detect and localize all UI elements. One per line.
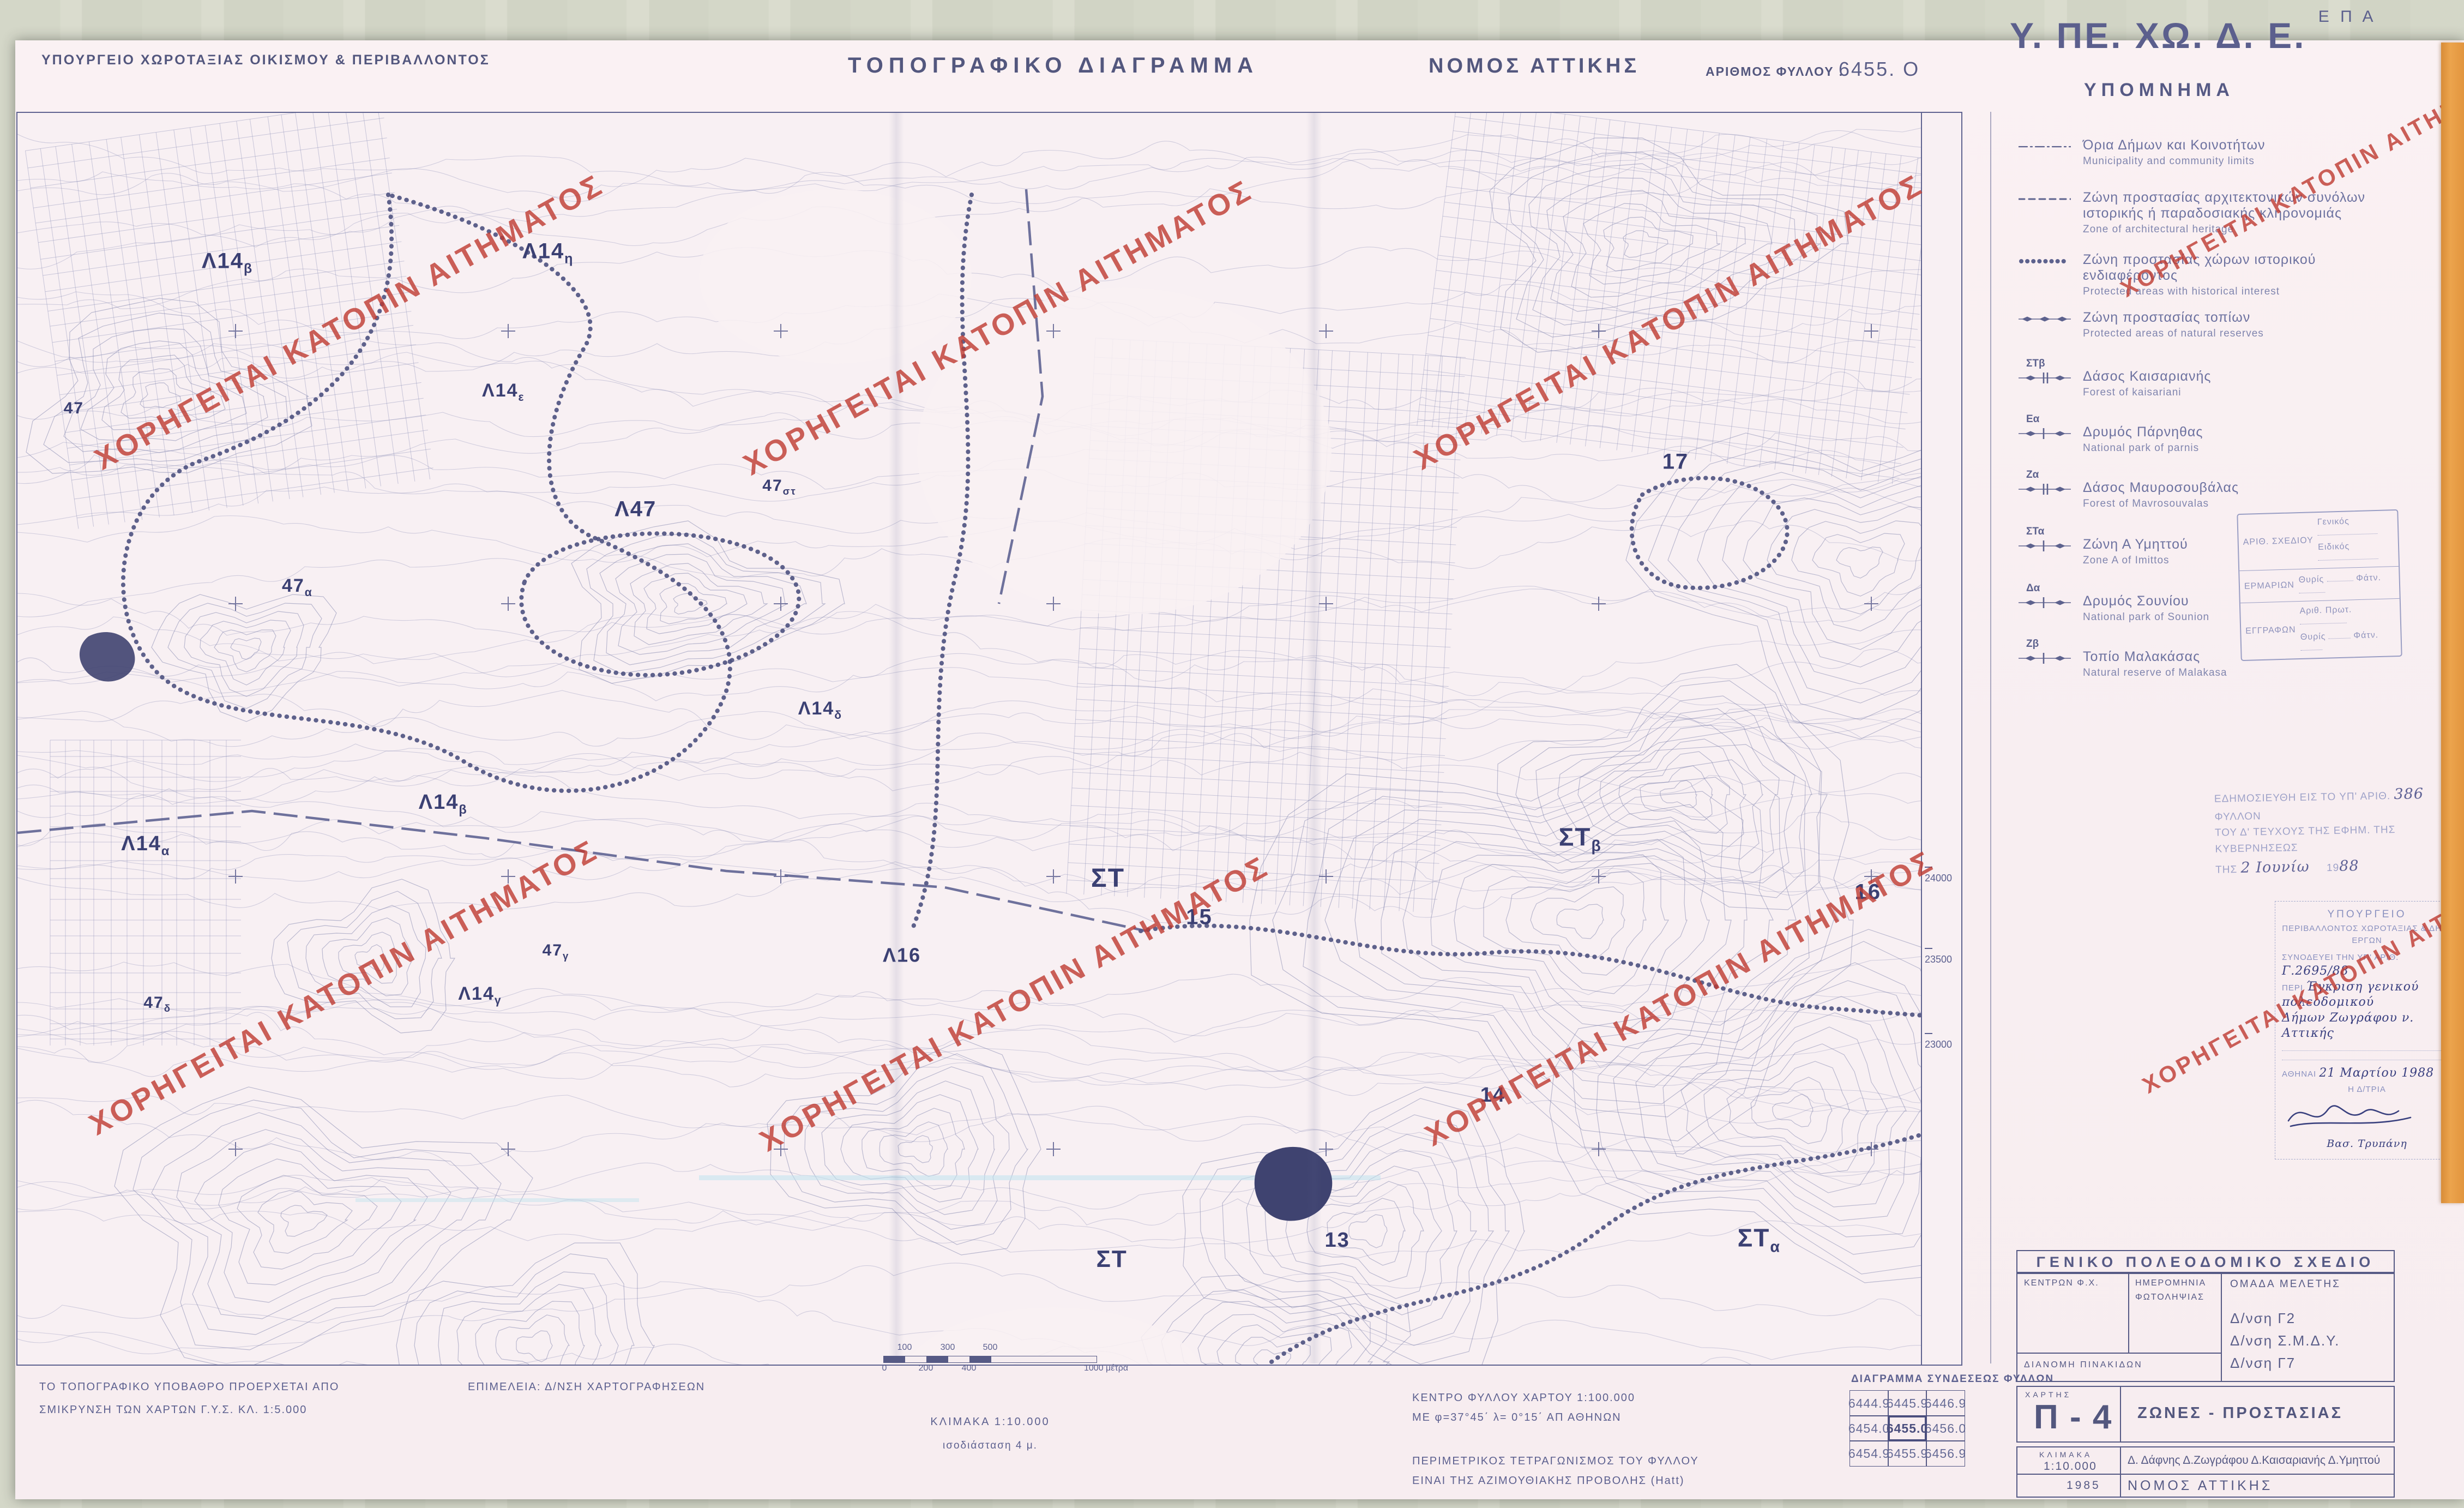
zone-code: ΣΤβ [2026, 358, 2045, 370]
zone-label-ΣΤ: ΣΤ [1091, 863, 1125, 897]
legend-symbol-icon [2019, 139, 2071, 155]
filing-row1-a: Γενικός [2317, 515, 2394, 538]
sheet-cell-6444.9: 6444.9 [1849, 1390, 1888, 1416]
zone-code: ΣΤα [2026, 526, 2044, 538]
legend-symbol-icon [2019, 253, 2071, 269]
margin-rule [1990, 112, 1991, 1363]
approval-ref-number: Γ.2695/88 [2282, 964, 2349, 978]
sheet-cell-6445.9: 6445.9 [1888, 1390, 1926, 1416]
scale-tick: 200 [919, 1363, 933, 1373]
projection-note1: ΠΕΡΙΜΕΤΡΙΚΟΣ ΤΕΤΡΑΓΩΝΙΣΜΟΣ ΤΟΥ ΦΥΛΛΟΥ [1412, 1455, 1699, 1468]
dotted-line [2282, 1051, 2452, 1060]
sheet-cell-6456.0: 6456.0 [1926, 1415, 1965, 1441]
zone-label-47γ: 47γ [543, 941, 570, 962]
publication-date: 2 Ιουνίω [2240, 858, 2310, 876]
legend-symbol-icon [2019, 425, 2071, 442]
scale-bar: 100 300 500 0 200 400 1000 μέτρα [883, 1356, 1097, 1363]
approval-ref: ΣΥΝΟΔΕΥΕΙ ΤΗΝ ΥΠ' ΑΡΙΘ. Γ.2695/88 [2282, 952, 2452, 980]
zone-label-47: 47 [64, 399, 84, 420]
cell-team-list: Δ/νση Γ2 Δ/νση Σ.Μ.Δ.Υ. Δ/νση Γ7 [2230, 1305, 2340, 1372]
scale-tick: 400 [962, 1363, 977, 1373]
legend-symbol: Ζβ [2019, 649, 2073, 679]
legend-label-en: Protected areas of natural reserves [2083, 328, 2264, 340]
ministry-name: ΥΠΟΥΡΓΕΙΟ ΧΩΡΟΤΑΞΙΑΣ ΟΙΚΙΣΜΟΥ & ΠΕΡΙΒΑΛΛ… [41, 52, 490, 68]
approval-subject-line2: Δήμων Ζωγράφου ν. Αττικής [2282, 1011, 2452, 1042]
scale-bar-segments [883, 1356, 1097, 1363]
legend-label-en: Natural reserve of Malakasa [2083, 667, 2227, 679]
legend-symbol-icon [2019, 594, 2071, 611]
scale-value: 1:10.000 [2044, 1460, 2097, 1473]
legend-item-1: Ζώνη προστασίας αρχιτεκτονικών συνόλων ι… [2019, 190, 2378, 236]
zone-label-14: 14 [1480, 1084, 1505, 1110]
sheet-number-label: ΑΡΙΘΜΟΣ ΦΥΛΛΟΥ : [1706, 64, 1844, 79]
filing-row2-label: ΕΡΜΑΡΙΩΝ [2244, 580, 2294, 592]
legend-label-gr: Ζώνη προστασίας τοπίων [2083, 310, 2264, 326]
coordinate-tick: 23000 [1925, 1028, 1961, 1050]
zone-label-Λ14β: Λ14β [419, 791, 468, 817]
legend-symbol [2019, 310, 2073, 340]
paper-crease [889, 112, 904, 1363]
sheet-connection-diagram: 6444.96445.96446.96454.06455.06456.06454… [1850, 1391, 1965, 1466]
publication-stamp: ΕΔΗΜΟΣΙΕΥΘΗ ΕΙΣ ΤΟ ΥΠ' ΑΡΙΘ. 386 ΦΥΛΛΟΝ … [2214, 782, 2450, 880]
team-line: Δ/νση Γ2 [2230, 1310, 2340, 1327]
legend-label-en: Forest of kaisariani [2083, 387, 2211, 399]
zone-label-Λ14β: Λ14β [202, 249, 253, 277]
legend-symbol: Ζα [2019, 480, 2073, 510]
legend-label-en: Zone of architectural heritage [2083, 224, 2378, 236]
credit-note: ΕΠΙΜΕΛΕΙΑ: Δ/ΝΣΗ ΧΑΡΤΟΓΡΑΦΗΣΕΩΝ [468, 1381, 705, 1393]
filing-row1-b: Ειδικός [2318, 540, 2394, 563]
title-block-info: ΚΕΝΤΡΩΝ Φ.Χ. ΗΜΕΡΟΜΗΝΙΑ ΦΩΤΟΛΗΨΙΑΣ ΟΜΑΔΑ… [2016, 1272, 2395, 1382]
filing-row3-b: Θυρίς Φάτν. [2300, 629, 2397, 653]
map-canvas: 47Λ14βΛ14ηΛ14εΛ4747στ47αΛ14δΛ14βΛ14α47γΛ… [16, 112, 1962, 1366]
zone-label-ΣΤα: ΣΤα [1738, 1223, 1781, 1256]
legend-symbol: Εα [2019, 424, 2073, 454]
zone-code: Εα [2026, 413, 2039, 425]
coordinate-tick: 24000 [1925, 861, 1961, 884]
legend-item-3: Ζώνη προστασίας τοπίων Protected areas o… [2019, 310, 2378, 340]
map-center-note1: ΚΕΝΤΡΟ ΦΥΛΛΟΥ ΧΑΡΤΟΥ 1:100.000 [1412, 1392, 1635, 1404]
legend-label-gr: Ζώνη προστασίας χώρων ιστορικού ενδιαφέρ… [2083, 252, 2378, 284]
cell-dianomi: ΔΙΑΝΟΜΗ ΠΙΝΑΚΙΔΩΝ [2024, 1360, 2143, 1370]
coordinate-tick: 23500 [1925, 942, 1961, 965]
zone-label-Λ14δ: Λ14δ [798, 698, 842, 722]
approval-header1: ΥΠΟΥΡΓΕΙΟ [2282, 907, 2452, 923]
legend-symbol [2019, 190, 2073, 236]
sheet-cell-6454.9: 6454.9 [1849, 1440, 1888, 1466]
projection-note2: ΕΙΝΑΙ ΤΗΣ ΑΖΙΜΟΥΘΙΑΚΗΣ ΠΡΟΒΟΛΗΣ (Hatt) [1412, 1475, 1685, 1487]
cell-photo-date: ΗΜΕΡΟΜΗΝΙΑ ΦΩΤΟΛΗΨΙΑΣ [2135, 1278, 2206, 1302]
contour-interval-caption: ισοδιάσταση 4 μ. [883, 1440, 1097, 1452]
legend-symbol-icon [2019, 191, 2071, 207]
legend-item-4: ΣΤβ Δάσος Καισαριανής Forest of kaisaria… [2019, 369, 2378, 399]
legend-label-en: National park of Sounion [2083, 611, 2209, 623]
signature-icon [2282, 1096, 2418, 1132]
topographic-texture [17, 113, 1959, 1365]
approval-signer-name: Βασ. Τρυπάνη [2282, 1136, 2452, 1152]
approval-date-line: ΑΘΗΝΑΙ 21 Μαρτίου 1988 [2282, 1066, 2452, 1082]
legend-label-gr: Τοπίο Μαλακάσας [2083, 649, 2227, 665]
legend-symbol [2019, 137, 2073, 167]
scale-end-label: 1000 μέτρα [1084, 1363, 1128, 1373]
page-title: ΤΟΠΟΓΡΑΦΙΚΟ ΔΙΑΓΡΑΜΜΑ [848, 53, 1258, 78]
source-note-line2: ΣΜΙΚΡΥΝΣΗ ΤΩΝ ΧΑΡΤΩΝ Γ.Υ.Σ. ΚΛ. 1:5.000 [39, 1404, 307, 1416]
legend-item-0: Όρια Δήμων και Κοινοτήτων Municipality a… [2019, 137, 2378, 167]
zone-code: Ζβ [2026, 638, 2039, 650]
filing-row3-label: ΕΓΓΡΑΦΩΝ [2245, 625, 2296, 636]
map-sheet-title: ΖΩΝΕΣ - ΠΡΟΣΤΑΣΙΑΣ [2137, 1404, 2343, 1422]
source-note-line1: ΤΟ ΤΟΠΟΓΡΑΦΙΚΟ ΥΠΟΒΑΘΡΟ ΠΡΟΕΡΧΕΤΑΙ ΑΠΟ [39, 1381, 339, 1393]
cell-kentron: ΚΕΝΤΡΩΝ Φ.Χ. [2024, 1278, 2099, 1288]
municipalities: Δ. Δάφνης Δ.Ζωγράφου Δ.Καισαριανής Δ.Υμη… [2128, 1454, 2380, 1467]
legend-symbol-icon [2019, 650, 2071, 666]
sheet-cell-6455.0: 6455.0 [1888, 1415, 1926, 1441]
scale-tick: 500 [983, 1343, 998, 1353]
team-line: Δ/νση Γ7 [2230, 1355, 2340, 1372]
sheet-cell-6446.9: 6446.9 [1926, 1390, 1965, 1416]
cell-team-title: ΟΜΑΔΑ ΜΕΛΕΤΗΣ [2230, 1278, 2341, 1290]
publication-line1: ΕΔΗΜΟΣΙΕΥΘΗ ΕΙΣ ΤΟ ΥΠ' ΑΡΙΘ. 386 ΦΥΛΛΟΝ [2214, 782, 2449, 825]
zone-label-17: 17 [1662, 449, 1689, 477]
legend-symbol-icon [2019, 481, 2071, 497]
paper-crease [1306, 112, 1322, 1363]
legend-symbol: ΣΤα [2019, 537, 2073, 567]
zone-label-Λ14γ: Λ14γ [458, 983, 502, 1007]
legend-label-gr: Ζώνη Α Υμηττού [2083, 537, 2188, 552]
zone-label-Λ14α: Λ14α [121, 832, 170, 858]
legend-label-gr: Ζώνη προστασίας αρχιτεκτονικών συνόλων ι… [2083, 190, 2378, 221]
zone-label-47στ: 47στ [762, 477, 796, 497]
zone-label-13: 13 [1324, 1229, 1350, 1255]
sheet-number-value: 6455. Ο [1839, 58, 1920, 81]
legend-symbol: ΣΤβ [2019, 369, 2073, 399]
binding-tab [2441, 43, 2464, 1203]
zone-code: Δα [2026, 582, 2040, 594]
approval-date: 21 Μαρτίου 1988 [2319, 1066, 2434, 1080]
scanned-map-sheet: { "watermark": {"text": "ΧΟΡΗΓΕΙΤΑΙ ΚΑΤΟ… [0, 0, 2464, 1508]
zone-label-Λ14η: Λ14η [522, 239, 574, 267]
zone-label-47δ: 47δ [143, 994, 171, 1014]
filing-row1-label: ΑΡΙΘ. ΣΧΕΔΙΟΥ [2243, 536, 2314, 548]
publication-line2: ΤΟΥ Δ' ΤΕΥΧΟΥΣ ΤΗΣ ΕΦΗΜ. ΤΗΣ ΚΥΒΕΡΝΗΣΕΩΣ [2215, 821, 2450, 857]
sheet-cell-6454.0: 6454.0 [1849, 1415, 1888, 1441]
title-block-map-row: ΧΑΡΤΗΣ Π - 4 ΖΩΝΕΣ - ΠΡΟΣΤΑΣΙΑΣ [2016, 1386, 2395, 1443]
filing-row2-fields: Θυρίς Φάτν. [2298, 572, 2395, 596]
sheet-cell-6455.9: 6455.9 [1888, 1440, 1926, 1466]
zone-label-ΣΤβ: ΣΤβ [1559, 822, 1602, 856]
legend-item-6: Ζα Δάσος Μαυροσουβάλας Forest of Mavroso… [2019, 480, 2378, 510]
region-name: ΝΟΜΟΣ ΑΤΤΙΚΗΣ [2128, 1478, 2273, 1494]
publication-number: 386 [2394, 785, 2424, 803]
legend-symbol-icon [2019, 538, 2071, 554]
legend-label-gr: Όρια Δήμων και Κοινοτήτων [2083, 137, 2265, 153]
legend-label-en: National park of parnis [2083, 442, 2203, 454]
zone-label-15: 15 [1186, 905, 1213, 933]
map-center-note2: ΜΕ φ=37°45΄ λ= 0°15΄ ΑΠ ΑΘΗΝΩΝ [1412, 1411, 1622, 1424]
map-code: Π - 4 [2034, 1398, 2112, 1437]
year: 1985 [2067, 1479, 2101, 1492]
zone-label-Λ47: Λ47 [615, 497, 656, 525]
legend-label-gr: Δρυμός Σουνίου [2083, 593, 2209, 609]
legend-label-en: Zone A of Imittos [2083, 555, 2188, 567]
legend-label-gr: Δρυμός Πάρνηθας [2083, 424, 2203, 440]
legend-symbol-icon [2019, 370, 2071, 386]
dotted-line [2282, 1042, 2452, 1051]
approval-subject: ΠΕΡΙ Έγκριση γενικού πολεοδομικού [2282, 980, 2452, 1011]
legend-symbol [2019, 252, 2073, 298]
zone-label-Λ14ε: Λ14ε [482, 380, 525, 404]
scale-tick: 100 [897, 1343, 912, 1353]
legend-symbol-icon [2019, 311, 2071, 327]
filing-stamp: ΑΡΙΘ. ΣΧΕΔΙΟΥ Γενικός Ειδικός ΕΡΜΑΡΙΩΝ Θ… [2237, 509, 2402, 661]
team-line: Δ/νση Σ.Μ.Δ.Υ. [2230, 1332, 2340, 1349]
scale-tick: 300 [941, 1343, 955, 1353]
filing-row3-a: Αριθ. Πρωτ. [2299, 604, 2396, 627]
legend-label-en: Municipality and community limits [2083, 155, 2265, 167]
legend-symbol: Δα [2019, 593, 2073, 623]
legend-label-en: Forest of Mavrosouvalas [2083, 498, 2239, 510]
zone-code: Ζα [2026, 469, 2039, 481]
legend-item-2: Ζώνη προστασίας χώρων ιστορικού ενδιαφέρ… [2019, 252, 2378, 298]
sheet-cell-6456.9: 6456.9 [1926, 1440, 1965, 1466]
approval-stamp: ΥΠΟΥΡΓΕΙΟ ΠΕΡΙΒΑΛΛΟΝΤΟΣ ΧΩΡΟΤΑΞΙΑΣ & ΔΗΜ… [2275, 901, 2459, 1159]
scale-label: ΚΛΙΜΑΚΑ [2039, 1450, 2092, 1459]
title-block-header: ΓΕΝΙΚΟ ΠΟΛΕΟΔΟΜΙΚΟ ΣΧΕΔΙΟ [2016, 1250, 2395, 1274]
legend-label-gr: Δάσος Μαυροσουβάλας [2083, 480, 2239, 496]
scale-tick: 0 [882, 1363, 887, 1373]
scale-caption: ΚΛΙΜΑΚΑ 1:10.000 [883, 1416, 1097, 1428]
approval-header2: ΠΕΡΙΒΑΛΛΟΝΤΟΣ ΧΩΡΟΤΑΞΙΑΣ & ΔΗΜ. ΕΡΓΩΝ [2282, 923, 2452, 947]
legend-item-5: Εα Δρυμός Πάρνηθας National park of parn… [2019, 424, 2378, 454]
zone-label-47α: 47α [282, 575, 313, 599]
publication-line3: ΤΗΣ 2 Ιουνίω 1988 [2215, 853, 2450, 880]
legend-label-en: Protected areas with historical interest [2083, 286, 2378, 298]
region-title: ΝΟΜΟΣ ΑΤΤΙΚΗΣ [1429, 55, 1640, 78]
title-block-scale-row: ΚΛΙΜΑΚΑ 1:10.000 Δ. Δάφνης Δ.Ζωγράφου Δ.… [2016, 1446, 2395, 1498]
zone-label-ΣΤ: ΣΤ [1096, 1246, 1127, 1276]
legend-label-gr: Δάσος Καισαριανής [2083, 369, 2211, 384]
zone-label-16: 16 [1855, 880, 1882, 908]
approval-signer-title: Η Δ/ΤΡΙΑ [2282, 1084, 2452, 1096]
